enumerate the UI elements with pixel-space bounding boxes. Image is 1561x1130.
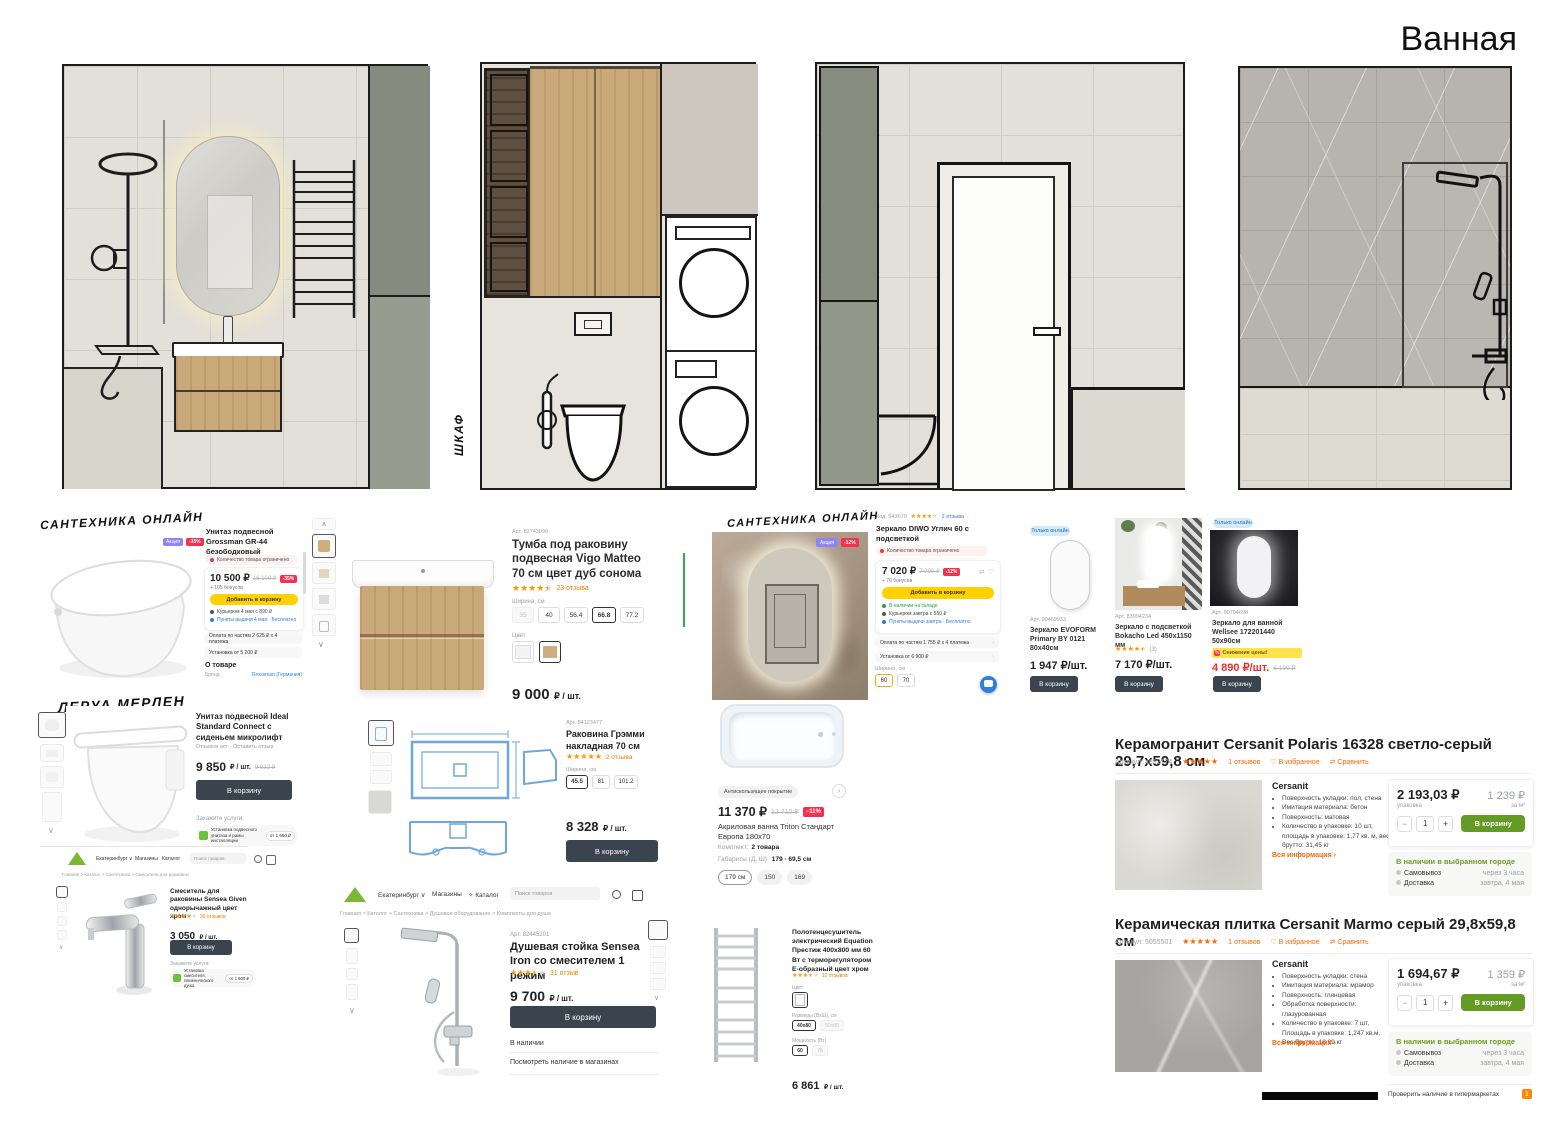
pack-price: 2 193,03 ₽ [1397, 787, 1460, 803]
page-title: Ванная [1375, 20, 1517, 59]
elevation-door-wall [815, 62, 1185, 490]
add-to-cart-button[interactable]: Добавить в корзину [882, 587, 994, 599]
power-option-disabled[interactable]: 75 [812, 1045, 828, 1056]
price-row: 4 890 ₽/шт. 6 190 ₽ [1212, 661, 1296, 674]
color-options [512, 641, 561, 663]
flush-plate [574, 312, 612, 336]
article: Арт. 82743090 [512, 529, 548, 535]
price: 7 020 ₽ [882, 566, 916, 577]
dims-row: Габариты (Д, Ш): 179 · 69,5 см [718, 856, 811, 863]
width-option[interactable]: 77.2 [620, 607, 644, 623]
boxed-plumbing [1070, 387, 1185, 488]
open-shelving [484, 68, 530, 298]
old-price: 16 100 ₽ [253, 575, 277, 582]
service-icon [173, 974, 181, 982]
width-option[interactable]: 101.2 [614, 775, 638, 789]
favorite-link[interactable]: ♡ В избранное [1270, 938, 1319, 946]
availability-box: В наличии в выбранном городе Самовывоз ч… [1388, 1032, 1532, 1076]
rating-row[interactable]: ★★★★★★★★★★ 2 отзыва [566, 753, 632, 761]
percent-icon: % [1214, 650, 1220, 656]
add-to-cart-button[interactable]: В корзину [1461, 994, 1525, 1011]
window-edge-bar [1262, 1092, 1378, 1100]
feature-bullets: Поверхность укладки: стена Имитация мате… [1272, 972, 1390, 1047]
gallery-thumbnail[interactable] [57, 930, 67, 940]
price-row: 11 370 ₽ 12 710 ₽ −11% [718, 804, 824, 819]
price: 8 328 ₽ / шт. [566, 818, 627, 836]
qty-plus-button[interactable]: + [1438, 816, 1453, 832]
wall-cabinet [530, 66, 660, 298]
courier-row: Курьером завтра с 550 ₽ [882, 611, 994, 617]
gallery-thumbnail[interactable] [312, 534, 336, 558]
toilet-sketch [877, 412, 941, 490]
width-option[interactable]: 40 [538, 607, 560, 623]
reviews-row[interactable]: Отзывов нет · Оставить отзыв [196, 744, 273, 750]
leroy-header: Екатеринбург ∨ Магазины Каталог Поиск то… [40, 846, 248, 871]
in-stock-icon [882, 604, 886, 608]
installments-row[interactable]: Оплата по частям 1 755 ₽ х 4 платежа› [875, 637, 999, 648]
price: 10 500 ₽ [210, 573, 250, 584]
delivery-row: Доставка завтра, 4 мая [1396, 1060, 1524, 1067]
thumbs-down-chevron[interactable]: ∨ [349, 1006, 355, 1015]
drain [818, 732, 823, 737]
leroy-logo[interactable] [68, 852, 86, 865]
service-price: от 1 650 ₽ [266, 831, 295, 841]
reviews-link[interactable]: 1 отзывов [1228, 759, 1260, 766]
vanity-body [360, 586, 484, 690]
gallery-thumbnail[interactable] [346, 968, 358, 980]
laundry-column [660, 64, 758, 488]
nav-stores[interactable]: Магазины [135, 856, 158, 862]
breadcrumb[interactable]: Главная > Каталог > Сантехника > Душевое… [340, 911, 551, 917]
product-photo-evoform [1032, 538, 1108, 612]
add-to-cart-button[interactable]: В корзину [1115, 676, 1163, 692]
price: 9 700 ₽ / шт. [510, 988, 573, 1006]
article: Арт. 90469933 [1030, 617, 1066, 623]
gallery-thumbnail[interactable] [57, 916, 67, 926]
pickup-row: Пункты выдачи завтра · Бесплатно [882, 619, 994, 625]
old-price: 12 710 ₽ [771, 808, 799, 816]
installments-row[interactable]: Оплата по частям 2 625 ₽ х 4 платежа [204, 633, 302, 644]
tile-photo-marmo [1115, 960, 1262, 1072]
gallery-thumbnail[interactable] [370, 752, 392, 766]
promo-badge: Акция [163, 538, 183, 546]
courier-row: Курьером 4 мая с 890 ₽ [210, 609, 298, 615]
compare-link[interactable]: ⇄ Сравнить [1330, 938, 1369, 946]
old-price: 9 932 ₽ [255, 764, 276, 771]
stock-warning: Количество товара ограничено [206, 555, 298, 565]
mirror-reflection [207, 195, 253, 289]
old-price: 6 190 ₽ [1273, 664, 1295, 672]
width-option-selected[interactable]: 45.5 [566, 775, 588, 789]
thumbs-down-chevron[interactable]: ∨ [59, 944, 63, 951]
article: Арт. 82445201 [510, 932, 549, 938]
product-title: Зеркало для ванной Wellsee 172201440 50x… [1212, 619, 1302, 646]
gallery-thumbnail[interactable] [344, 928, 359, 943]
services-label: Закажите услуги: [196, 816, 244, 822]
gallery-thumbnail[interactable] [56, 886, 68, 898]
width-option[interactable]: 81 [592, 775, 610, 789]
article: Арт. 83994234 [1115, 614, 1151, 620]
discount-chip: -12% [943, 568, 961, 576]
qty-value[interactable]: 1 [1416, 816, 1433, 832]
article: Арт. 90704698 [1212, 610, 1248, 616]
add-to-cart-button[interactable]: Добавить в корзину [210, 594, 298, 605]
discount-badge: -35% [186, 538, 204, 546]
size-label: Размеры (ВхШ), см [792, 1013, 837, 1019]
gallery-thumbnail[interactable] [312, 614, 336, 636]
services-label: Закажите услуги: [170, 961, 210, 967]
all-info-link[interactable]: Вся информация › [1272, 852, 1336, 859]
availability-heading: В наличии в выбранном городе [1396, 857, 1524, 866]
nav-stores[interactable]: Магазины [432, 891, 462, 898]
color-swatch-oak[interactable] [539, 641, 561, 663]
toilet-photo-art [28, 540, 206, 690]
m2-price: 1 239 ₽ [1487, 789, 1525, 802]
add-to-cart-button[interactable]: В корзину [1213, 676, 1261, 692]
cart-icon[interactable] [266, 855, 276, 865]
pickup-row: Самовывоз через 3 часа [1396, 1050, 1524, 1057]
plant [1121, 520, 1135, 532]
promo-badge: Акция [816, 538, 838, 547]
qty-value[interactable]: 1 [1416, 995, 1433, 1011]
side-thumbnail[interactable] [650, 946, 666, 958]
rating-row[interactable]: ★★★★★★★★★★ 30 отзывов [170, 914, 226, 920]
courier-icon [210, 610, 214, 614]
gallery-thumbnail[interactable] [312, 562, 336, 584]
service-price: от 1 500 ₽ [225, 974, 253, 983]
width-options: 35 40 56.4 66.8 77.2 [512, 607, 644, 623]
product-photo-bathtub [716, 700, 848, 774]
feature-bullets: Поверхность укладки: пол, стена Имитация… [1272, 794, 1390, 851]
delivery-icon [1396, 1060, 1401, 1065]
pickup-icon [1396, 870, 1401, 875]
gallery-thumbnail[interactable] [38, 712, 66, 738]
feature-chip[interactable]: Антискользящее покрытие [718, 786, 798, 798]
favorite-link[interactable]: ♡ В избранное [1270, 758, 1319, 766]
add-to-cart-button[interactable]: В корзину [1461, 815, 1525, 832]
product-photo-bokacho [1115, 518, 1202, 610]
gallery-thumbnail[interactable] [368, 720, 394, 746]
sink-technical-drawing [396, 712, 566, 874]
size-option-selected[interactable]: 179 см [718, 870, 752, 885]
shower-column-sketch [86, 150, 164, 402]
size-option[interactable]: 150 [757, 870, 782, 885]
width-options: 60 70 [875, 674, 915, 687]
qty-minus-button[interactable]: − [1397, 816, 1412, 832]
width-option-selected[interactable]: 60 [875, 674, 893, 687]
product-title: Тумба под раковину подвесная Vigo Matteo… [512, 538, 652, 581]
product-photo-wellsee [1210, 530, 1298, 606]
m2-price: 1 359 ₽ [1487, 968, 1525, 981]
leroy-header-2: Екатеринбург ∨ Магазины ✧ Каталог Поиск … [340, 884, 660, 906]
next-arrow-button[interactable]: › [832, 784, 846, 798]
buy-panel: 10 500 ₽ 16 100 ₽ -35% + 105 бонусов Доб… [204, 567, 304, 631]
user-icon[interactable] [612, 890, 621, 899]
product-title: Унитаз подвесной Grossman GR-44 безободк… [206, 527, 300, 556]
online-badge: Только онлайн [1030, 526, 1070, 536]
rating-row[interactable]: ★★★★★★★★★★ 31 отзыв [510, 969, 579, 977]
compare-link[interactable]: ⇄ Сравнить [1330, 758, 1369, 766]
service-chip[interactable]: Установка смесителя, гигиенического душа… [170, 969, 256, 987]
gallery-thumbnail[interactable] [370, 770, 392, 784]
backlit-mirror [176, 136, 280, 316]
buy-panel: 1 694,67 ₽ 1 359 ₽ упаковка за м² − 1 + … [1388, 958, 1534, 1026]
tile-photo-polaris [1115, 780, 1262, 890]
pickup-icon [210, 618, 214, 622]
side-thumbnail[interactable] [648, 920, 668, 940]
stock-warning: Количество товара ограничено [876, 546, 988, 556]
product-title: Зеркало EVOFORM Primary BY 0121 80x40см [1030, 626, 1110, 653]
add-to-cart-button[interactable]: В корзину [566, 840, 658, 862]
bath-apron-tiles [1240, 388, 1510, 488]
width-option[interactable]: 70 [897, 674, 915, 687]
tall-cabinet-upper [819, 66, 879, 302]
meta-row: Артикул: 5055501 ★★★★★★★★★★ 1 отзывов ♡ … [1115, 938, 1369, 946]
tall-cabinet-top [368, 66, 430, 295]
product-photo-toilet [28, 540, 206, 690]
pickup-icon [1396, 1050, 1401, 1055]
rating-row[interactable]: ★★★★★★★★★★ 23 отзыва [512, 584, 589, 593]
gallery-thumbnail[interactable] [42, 792, 62, 822]
price: 11 370 ₽ [718, 804, 767, 819]
oval-mirror [748, 548, 832, 682]
towel-ladder-sketch [286, 158, 362, 320]
color-label: Цвет [792, 985, 803, 991]
door-handle [1033, 327, 1061, 336]
add-to-cart-button[interactable]: В корзину [510, 1006, 656, 1028]
vanity-unit [172, 342, 284, 434]
elevation-toilet-wall [480, 62, 756, 490]
delivery-row: Доставка завтра, 4 мая [1396, 880, 1524, 887]
thumbs-down-chevron[interactable]: ∨ [318, 640, 324, 649]
code-rating-row: Код: 543679 ★★★★★★★★★★ 2 отзыва [876, 514, 964, 520]
add-to-cart-button[interactable]: В корзину [196, 780, 292, 800]
warning-icon [880, 549, 884, 553]
shower-column-sketch-2 [1436, 160, 1510, 400]
cabinet-annotation: ШКАФ [452, 384, 468, 456]
all-info-link[interactable]: Вся информация › [1272, 1040, 1336, 1047]
product-photo-vanity [340, 536, 502, 702]
user-icon[interactable] [254, 855, 262, 863]
city-selector[interactable]: Екатеринбург ∨ [378, 891, 425, 899]
tall-cabinet-lower [819, 302, 879, 486]
favorite-icon[interactable]: ♡ [988, 568, 994, 576]
color-label: Цвет [512, 633, 525, 639]
size-option-selected[interactable]: 40х80 [792, 1020, 816, 1031]
width-label: Ширина, см [512, 599, 545, 605]
gallery-thumbnail[interactable] [57, 902, 67, 912]
discount-chip: -35% [280, 575, 298, 583]
qty-plus-button[interactable]: + [1438, 995, 1453, 1011]
elevation-bath-wall [1238, 66, 1512, 490]
add-to-cart-button[interactable]: В корзину [170, 940, 232, 955]
gallery-thumbnail[interactable] [368, 790, 392, 814]
city-selector[interactable]: Екатеринбург ∨ [96, 856, 133, 862]
size-option-disabled[interactable]: 50х80 [820, 1020, 844, 1031]
size-option[interactable]: 169 [787, 870, 812, 885]
green-marker-line [683, 553, 685, 627]
gallery-thumbnail[interactable] [346, 948, 358, 964]
pickup-row: Самовывоз через 3 часа [1396, 870, 1524, 877]
price: 7 170 ₽/шт. [1115, 658, 1172, 671]
tub-rim [720, 704, 844, 768]
scrollbar[interactable] [303, 552, 306, 594]
article: Арт. 84123477 [566, 720, 602, 726]
installation-row[interactable]: Установка от 5 200 ₽ [204, 647, 302, 658]
in-stock-row: В наличии на складе [882, 603, 994, 609]
price: 4 890 ₽/шт. [1212, 661, 1269, 674]
meta-row: Артикул: 4852174 ★★★★★★★★★★ 1 отзывов ♡ … [1115, 758, 1369, 766]
price: 9 000 ₽ / шт. [512, 686, 581, 704]
about-heading: О товаре [205, 662, 236, 669]
discount-badge: -12% [841, 538, 859, 547]
product-photo-mirror: Акция -12% [712, 532, 868, 700]
overflow [832, 732, 836, 736]
buy-panel: 7 020 ₽ 7 990 ₽ -12% ⇄ ♡ + 70 бонусов До… [875, 560, 1001, 634]
brand: Cersanit [1272, 781, 1308, 791]
product-title: Унитаз подвесной Ideal Standard Connect … [196, 712, 296, 743]
side-thumbnail[interactable] [650, 978, 666, 990]
brand-row: Бренд Grossman (Германия) [205, 672, 302, 678]
power-label: Мощность (Вт) [792, 1038, 826, 1044]
chat-icon[interactable] [980, 676, 997, 693]
width-label: Ширина, см [875, 666, 905, 672]
warning-icon [210, 558, 214, 562]
bonus: + 105 бонусов [210, 585, 298, 591]
shop-label: САНТЕХНИКА ОНЛАЙН [40, 510, 204, 533]
service-chip[interactable]: Установка подвесного унитаза и рамы инст… [196, 825, 298, 846]
product-photo-toilet2 [66, 706, 194, 848]
old-price: 7 990 ₽ [919, 568, 940, 575]
washer-dryer-stack [665, 216, 757, 488]
door-frame [937, 162, 1071, 488]
stores-availability-link[interactable]: Посмотреть наличие в магазинах [510, 1059, 619, 1066]
shower-stand-photo-art [362, 926, 502, 1078]
courier-icon [882, 612, 886, 616]
product-title: Раковина Грэмми накладная 70 см [566, 729, 670, 752]
buy-panel: 2 193,03 ₽ 1 239 ₽ упаковка за м² − 1 + … [1388, 779, 1534, 847]
brand: Cersanit [1272, 959, 1308, 969]
elevation-shower-wall [62, 64, 428, 489]
rating-row: ★★★★★★★★★★ (3) [1115, 646, 1157, 653]
compare-icon[interactable]: ⇄ [979, 568, 985, 576]
nav-catalog[interactable]: ✧ Каталог [468, 891, 499, 899]
wall-hung-toilet-sketch [558, 400, 630, 486]
leroy-logo[interactable] [344, 887, 366, 902]
reviews-link[interactable]: 1 отзывов [1228, 939, 1260, 946]
towel-dryer-photo-art [702, 922, 768, 1068]
dryer-door [679, 248, 749, 318]
sku: Артикул: 4852174 [1115, 759, 1172, 766]
sku: Артикул: 5055501 [1115, 939, 1172, 946]
gallery-thumbnail[interactable] [312, 588, 336, 610]
thumbs-up-chevron[interactable]: ∧ [312, 518, 336, 530]
side-thumbs-chevron[interactable]: ∨ [654, 994, 659, 1002]
sale-chip: % Снижение цены! [1212, 648, 1302, 658]
power-options: 60 75 [792, 1045, 828, 1056]
kit-row: Комплект: 2 товара [718, 844, 779, 851]
faucet-photo-art [72, 884, 168, 1000]
oval-mirror [1237, 536, 1271, 598]
width-options: 45.5 81 101.2 [566, 775, 638, 789]
washer-door [679, 386, 749, 456]
discount-chip: −11% [803, 807, 824, 817]
gallery-thumbnail[interactable] [40, 744, 64, 762]
hypermarket-check-row[interactable]: Проверить наличие в гипермаркетах 1 [1388, 1084, 1532, 1099]
led-mirror [1145, 526, 1171, 582]
gallery-thumbnail[interactable] [346, 984, 358, 1000]
price: 6 861 ₽ / шт. [792, 1076, 843, 1094]
power-option-selected[interactable]: 60 [792, 1045, 808, 1056]
laundry-wall [662, 64, 758, 216]
price: 1 947 ₽/шт. [1030, 659, 1087, 672]
price: 9 850 [196, 760, 226, 774]
nav-catalog[interactable]: Каталог [162, 856, 180, 862]
toilet2-photo-art [66, 706, 194, 848]
shop-label: САНТЕХНИКА ОНЛАЙН [727, 510, 879, 530]
gallery-thumbnail[interactable] [40, 766, 64, 788]
price-row: 9 850 ₽ / шт. 9 932 ₽ [196, 760, 275, 774]
product-title: Зеркало DIWO Углич 60 с подсветкой [876, 524, 998, 544]
online-badge: Только онлайн [1213, 518, 1253, 528]
size-options: 179 см 150 169 [718, 870, 812, 885]
thumbs-down-chevron[interactable]: ∨ [48, 826, 54, 835]
search-input[interactable]: Поиск товаров [510, 887, 600, 900]
moodboard: Ванная [0, 0, 1561, 1130]
pack-price: 1 694,67 ₽ [1397, 966, 1460, 982]
width-option[interactable]: 56.4 [564, 607, 588, 623]
oval-mirror [1050, 540, 1090, 610]
vanity-in-photo [1123, 586, 1185, 606]
qty-minus-button[interactable]: − [1397, 995, 1412, 1011]
availability-heading: В наличии в выбранном городе [1396, 1037, 1524, 1046]
availability-box: В наличии в выбранном городе Самовывоз ч… [1388, 852, 1532, 896]
search-input[interactable]: Поиск товаров [190, 853, 246, 864]
stock-status: В наличии [510, 1040, 544, 1047]
installation-row[interactable]: Установка от 6 900 ₽› [875, 651, 999, 662]
add-to-cart-button[interactable]: В корзину [1030, 676, 1078, 692]
delivery-icon [1396, 880, 1401, 885]
ceramic-basin [352, 560, 494, 588]
breadcrumb[interactable]: Главная > Каталог > Сантехника > Смесите… [62, 872, 189, 877]
product-title: Акриловая ванна Triton Стандарт Европа 1… [718, 822, 850, 842]
pickup-icon [882, 620, 886, 624]
color-swatch[interactable] [792, 992, 808, 1008]
product-title: Полотенцесушитель электрический Equation… [792, 928, 880, 974]
rating-row[interactable]: ★★★★★★★★★★ 12 отзывов [792, 973, 848, 979]
width-option-selected[interactable]: 66.8 [592, 607, 616, 623]
bonus: + 70 бонусов [882, 578, 994, 584]
check-badge: 1 [1522, 1089, 1532, 1099]
service-icon [199, 831, 208, 840]
size-options: 40х80 50х80 [792, 1020, 844, 1031]
width-option[interactable]: 35 [512, 607, 534, 623]
cart-icon[interactable] [632, 890, 643, 901]
color-swatch-white[interactable] [512, 641, 534, 663]
vanity-drawers [174, 356, 282, 432]
hygienic-shower-sketch [534, 370, 560, 458]
width-label: Ширина, см [566, 767, 596, 773]
side-thumbnail[interactable] [650, 962, 666, 974]
tall-cabinet-bottom [368, 295, 430, 489]
pickup-row: Пункты выдачи 4 мая · Бесплатно [210, 617, 298, 623]
